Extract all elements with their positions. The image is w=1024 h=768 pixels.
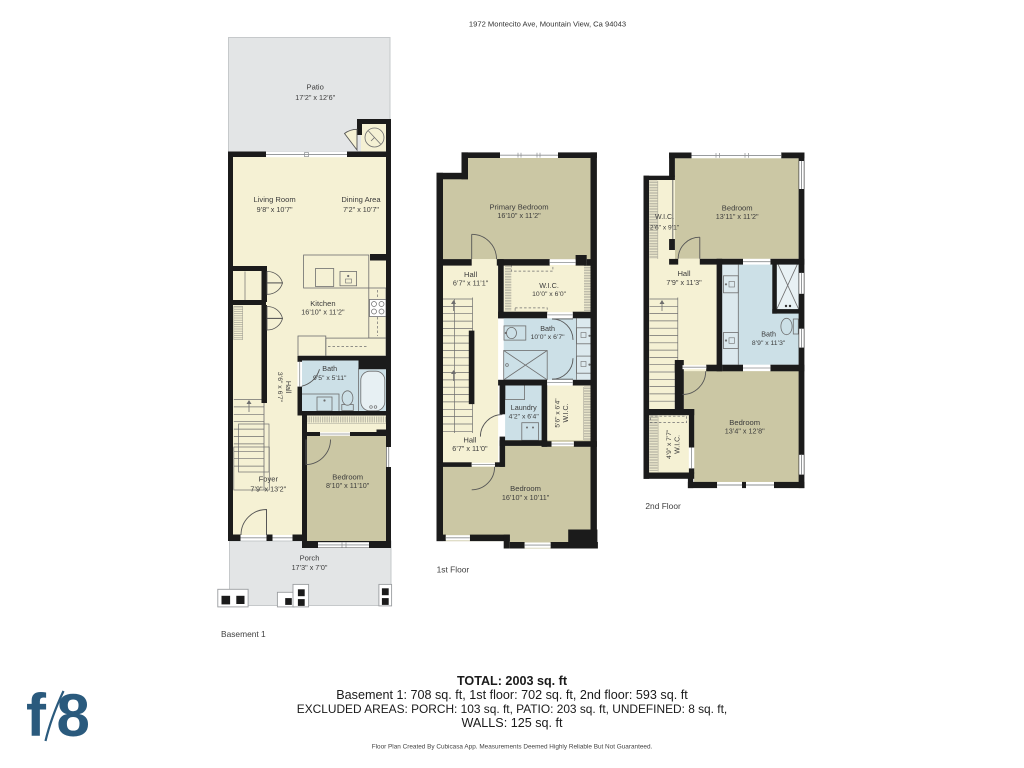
svg-text:Floor Plan Created By Cubicasa: Floor Plan Created By Cubicasa App. Meas… (372, 744, 653, 751)
svg-text:1972 Montecito Ave, Mountain V: 1972 Montecito Ave, Mountain View, Ca 94… (469, 20, 626, 29)
svg-text:3’6" x 6’7": 3’6" x 6’7" (276, 372, 283, 403)
svg-text:W.I.C.: W.I.C. (675, 435, 682, 454)
svg-text:16’10" x 10’11": 16’10" x 10’11" (502, 493, 550, 502)
svg-text:16’10" x 11’2": 16’10" x 11’2" (497, 211, 541, 220)
svg-text:4’9" x 7’7": 4’9" x 7’7" (666, 429, 673, 459)
svg-text:5’6" x 6’4": 5’6" x 6’4" (555, 398, 562, 428)
svg-text:17’3" x 7’0": 17’3" x 7’0" (292, 563, 328, 572)
svg-text:Living Room: Living Room (253, 195, 295, 204)
svg-text:Hall: Hall (284, 381, 293, 394)
svg-text:Hall: Hall (464, 270, 477, 279)
svg-text:Bath: Bath (322, 364, 337, 373)
svg-text:10’0" x 6’7": 10’0" x 6’7" (531, 334, 566, 341)
svg-text:Basement 1: 708 sq. ft, 1st fl: Basement 1: 708 sq. ft, 1st floor: 702 s… (336, 688, 688, 702)
svg-text:1st Floor: 1st Floor (437, 564, 470, 574)
svg-text:9’8" x 10’7": 9’8" x 10’7" (257, 205, 293, 214)
svg-text:4’2" x 6’4": 4’2" x 6’4" (509, 413, 540, 420)
svg-text:W.I.C.: W.I.C. (655, 214, 674, 221)
svg-text:2nd Floor: 2nd Floor (645, 501, 681, 511)
svg-text:7’9" x 11’3": 7’9" x 11’3" (666, 278, 702, 287)
svg-text:13’4" x 12’8": 13’4" x 12’8" (725, 427, 765, 436)
svg-text:Patio: Patio (307, 83, 324, 92)
svg-text:7’2" x 10’7": 7’2" x 10’7" (343, 205, 379, 214)
svg-text:2’6" x 9’1": 2’6" x 9’1" (650, 224, 680, 231)
svg-text:Dining Area: Dining Area (341, 195, 381, 204)
svg-text:8’9" x 11’3": 8’9" x 11’3" (752, 340, 786, 347)
svg-text:Bedroom: Bedroom (510, 484, 541, 493)
svg-text:Laundry: Laundry (511, 403, 537, 412)
svg-text:TOTAL: 2003 sq. ft: TOTAL: 2003 sq. ft (457, 674, 568, 688)
svg-text:Bath: Bath (540, 324, 555, 333)
svg-text:Bath: Bath (761, 329, 776, 338)
svg-text:f: f (26, 682, 47, 749)
svg-text:WALLS: 125 sq. ft: WALLS: 125 sq. ft (461, 716, 563, 730)
svg-text:9’5" x 5’11": 9’5" x 5’11" (313, 375, 347, 382)
svg-text:6’7" x 11’0": 6’7" x 11’0" (452, 444, 488, 453)
svg-text:8: 8 (57, 682, 90, 749)
svg-text:16’10" x 11’2": 16’10" x 11’2" (301, 307, 345, 316)
svg-text:8’10" x 11’10": 8’10" x 11’10" (326, 481, 370, 490)
svg-text:Primary Bedroom: Primary Bedroom (489, 202, 548, 211)
svg-text:7’9" x 13’2": 7’9" x 13’2" (250, 485, 286, 494)
svg-text:EXCLUDED AREAS: PORCH: 103 sq.: EXCLUDED AREAS: PORCH: 103 sq. ft, PATIO… (297, 702, 727, 716)
svg-text:13’11" x 11’2": 13’11" x 11’2" (716, 212, 759, 221)
svg-text:W.I.C.: W.I.C. (539, 281, 559, 290)
svg-text:Hall: Hall (677, 269, 690, 278)
svg-text:W.I.C.: W.I.C. (563, 403, 570, 422)
svg-text:Basement 1: Basement 1 (221, 629, 266, 639)
svg-text:17’2" x 12’6": 17’2" x 12’6" (295, 93, 335, 102)
svg-text:10’0" x 6’0": 10’0" x 6’0" (532, 291, 567, 298)
svg-text:6’7" x 11’1": 6’7" x 11’1" (453, 279, 489, 288)
svg-text:Foyer: Foyer (259, 475, 279, 484)
svg-text:Porch: Porch (300, 554, 320, 563)
